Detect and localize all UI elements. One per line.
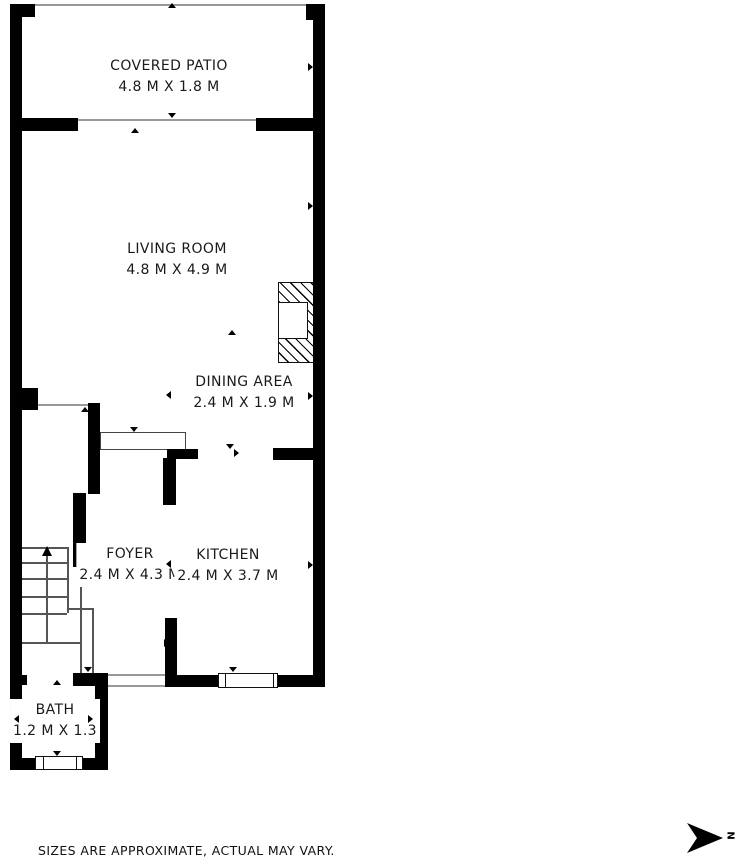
closet-outline — [100, 432, 186, 450]
fireplace-firebox — [278, 302, 308, 339]
marker-arrow-icon — [168, 113, 176, 118]
room-label-living-room: LIVING ROOM 4.8 M X 4.9 M — [123, 238, 230, 282]
wall-divider-upper-vert — [163, 458, 176, 505]
stairhall-door-line — [38, 404, 88, 406]
marker-arrow-icon — [17, 202, 22, 210]
bath-window — [35, 756, 83, 770]
wall-top-left-block — [10, 4, 35, 17]
room-name: LIVING ROOM — [126, 239, 227, 260]
marker-arrow-icon — [17, 63, 22, 71]
room-dims: 4.8 M X 4.9 M — [126, 260, 227, 281]
wall-living-left-step — [22, 388, 38, 410]
marker-arrow-icon — [88, 715, 93, 723]
marker-arrow-icon — [229, 667, 237, 672]
marker-arrow-icon — [228, 330, 236, 335]
room-dims: 2.4 M X 1.9 M — [193, 393, 294, 414]
marker-arrow-icon — [234, 449, 239, 457]
stair-up-arrow-icon — [42, 546, 52, 556]
wall-bath-top-stub — [17, 675, 27, 685]
stair-direction-line — [46, 556, 48, 642]
marker-arrow-icon — [164, 639, 169, 647]
compass: N — [686, 820, 740, 860]
marker-arrow-icon — [53, 751, 61, 756]
stair-tread — [22, 613, 67, 615]
size-disclaimer: SIZES ARE APPROXIMATE, ACTUAL MAY VARY. — [38, 843, 335, 858]
room-label-kitchen: KITCHEN 2.4 M X 3.7 M — [174, 544, 281, 588]
marker-arrow-icon — [168, 3, 176, 8]
marker-arrow-icon — [166, 391, 171, 399]
window-pane — [225, 674, 226, 687]
marker-arrow-icon — [308, 63, 313, 71]
marker-arrow-icon — [226, 444, 234, 449]
room-label-bath: BATH 1.2 M X 1.3 — [10, 699, 100, 743]
window-pane — [76, 757, 77, 769]
stair-lower-flight-edge — [92, 608, 94, 673]
kitchen-window — [218, 673, 278, 688]
wall-right-exterior — [313, 4, 325, 687]
floor-plan: COVERED PATIO 4.8 M X 1.8 M LIVING ROOM … — [0, 0, 742, 864]
marker-arrow-icon — [14, 715, 19, 723]
marker-arrow-icon — [308, 392, 313, 400]
marker-arrow-icon — [131, 128, 139, 133]
stair-tread — [22, 562, 67, 564]
wall-patio-divider-right — [256, 118, 325, 131]
room-dims: 1.2 M X 1.3 — [13, 721, 97, 742]
stair-landing-top — [67, 608, 93, 610]
room-dims: 4.8 M X 1.8 M — [110, 77, 228, 98]
passage-line-top — [108, 674, 165, 676]
marker-arrow-icon — [308, 202, 313, 210]
room-name: COVERED PATIO — [110, 56, 228, 77]
stair-tread — [22, 578, 67, 580]
room-label-dining-area: DINING AREA 2.4 M X 1.9 M — [190, 371, 297, 415]
room-name: DINING AREA — [193, 372, 294, 393]
patio-door-line — [78, 119, 256, 121]
room-dims: 2.4 M X 4.3 M — [79, 565, 180, 586]
marker-arrow-icon — [17, 639, 22, 647]
marker-arrow-icon — [308, 561, 313, 569]
stair-landing-bottom — [22, 642, 81, 644]
room-dims: 2.4 M X 3.7 M — [177, 566, 278, 587]
room-name: KITCHEN — [177, 545, 278, 566]
window-pane — [43, 757, 44, 769]
north-arrow-icon — [686, 820, 726, 856]
passage-line-bottom — [108, 685, 165, 687]
wall-foyer-west-upper — [88, 403, 100, 494]
stair-tread — [22, 596, 67, 598]
room-label-covered-patio: COVERED PATIO 4.8 M X 1.8 M — [107, 55, 231, 99]
north-label: N — [725, 831, 736, 839]
wall-patio-divider-left — [10, 118, 78, 131]
marker-arrow-icon — [166, 560, 171, 568]
marker-arrow-icon — [53, 680, 61, 685]
wall-dining-kitchen — [273, 448, 325, 460]
marker-arrow-icon — [81, 407, 89, 412]
fireplace — [278, 282, 315, 363]
room-name: BATH — [13, 700, 97, 721]
window-pane — [273, 674, 274, 687]
marker-arrow-icon — [130, 427, 138, 432]
marker-arrow-icon — [84, 667, 92, 672]
stair-stringer — [67, 547, 69, 613]
